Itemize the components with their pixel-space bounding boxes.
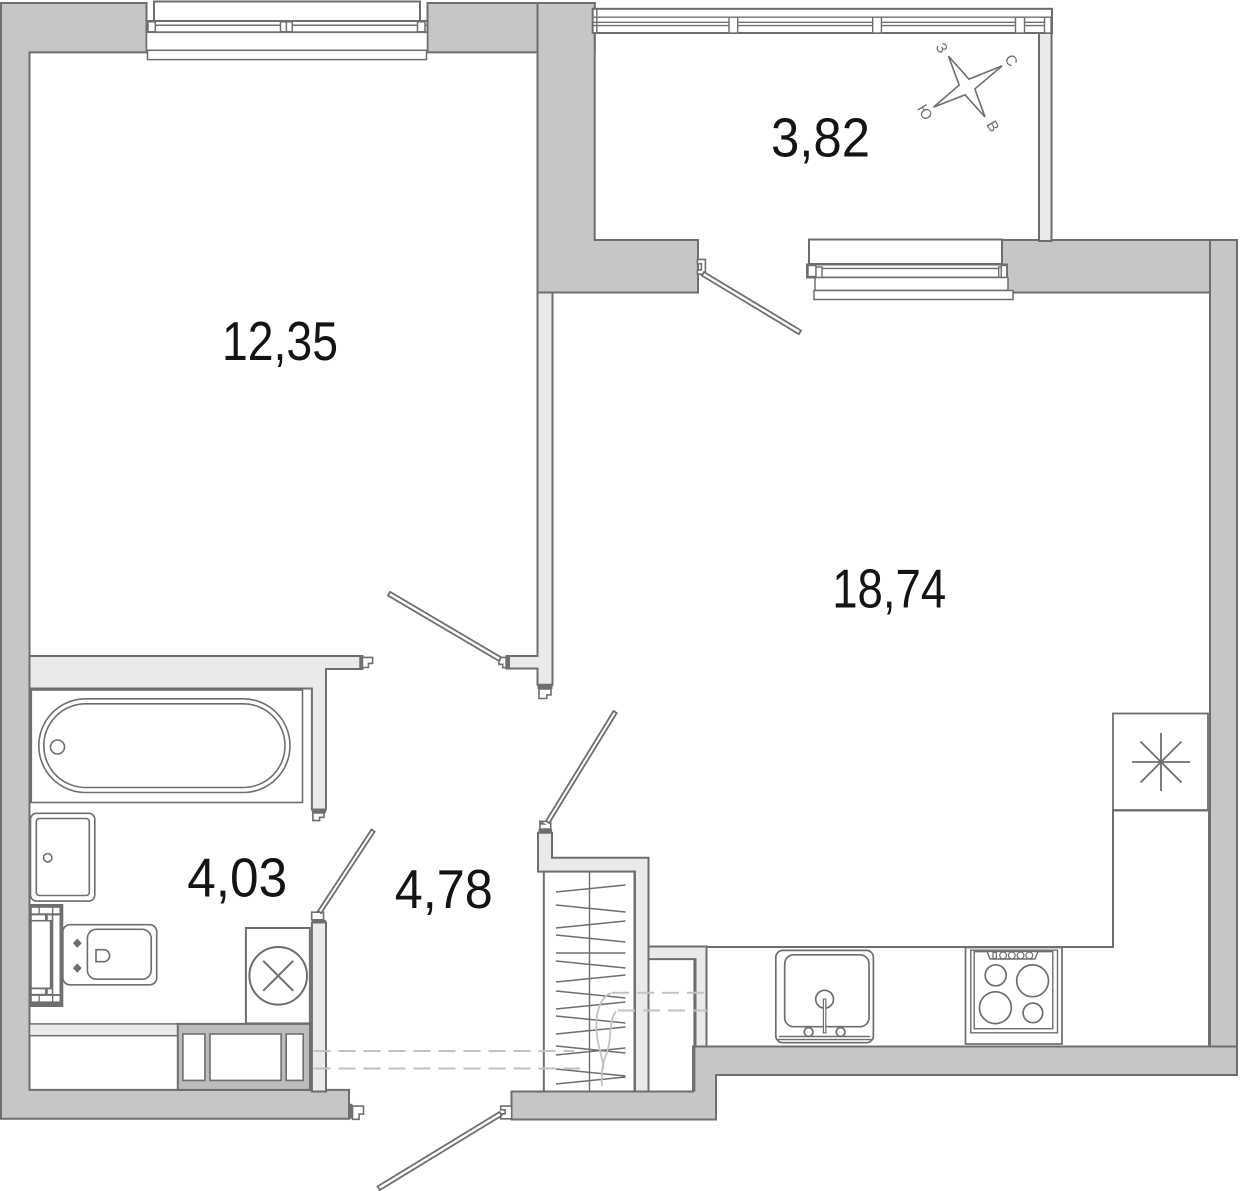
svg-text:3,82: 3,82 — [771, 107, 870, 169]
svg-text:18,74: 18,74 — [832, 558, 946, 620]
svg-text:В: В — [983, 118, 1003, 135]
svg-text:Ю: Ю — [913, 102, 935, 124]
svg-text:4,78: 4,78 — [395, 858, 493, 920]
svg-text:12,35: 12,35 — [222, 310, 338, 372]
svg-text:З: З — [932, 40, 951, 57]
svg-text:4,03: 4,03 — [187, 847, 287, 909]
svg-text:С: С — [1001, 52, 1021, 70]
